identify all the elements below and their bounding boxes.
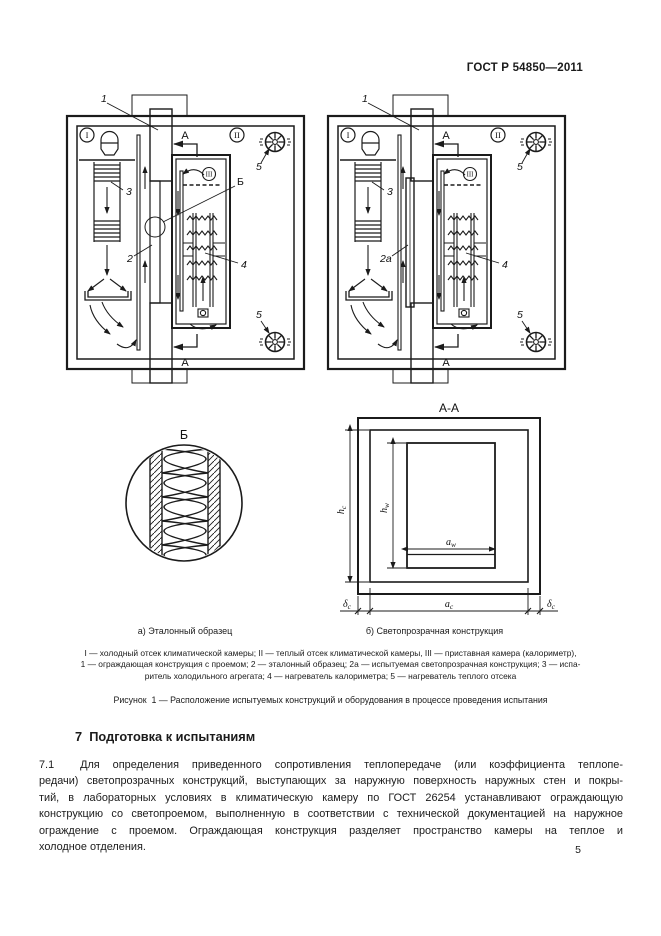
dim-ac: ac [445,599,454,611]
label-5-bottom: 5 [517,309,523,321]
fan-icon [520,133,552,152]
page-number: 5 [568,844,588,856]
calorimeter-box: III [433,155,491,329]
label-5-bottom: 5 [256,309,262,321]
paragraph-line: конструкцию со светопроемом, выполненную… [39,806,623,822]
paragraph-line: холодное отделения. [39,839,623,855]
translucent-construction [406,178,414,307]
document-page: ГОСТ Р 54850—2011 I [0,0,661,936]
partition-wall [150,109,172,383]
caption-translucent-construction: б) Светопрозрачная конструкция [322,626,547,636]
section-mark-top: А [181,130,189,142]
label-1: 1 [101,93,107,105]
paragraph-line: 7.1 Для определения приведенного сопроти… [39,757,623,773]
label-1: 1 [362,93,368,105]
legend-line: ритель холодильного агрегата; 4 — нагрев… [38,671,623,682]
drip-tray [85,291,131,300]
reference-specimen [145,181,165,303]
paragraph-line: редачи) светопрозрачных конструкций, выс… [39,773,623,789]
airflow-arrows [88,167,145,348]
roman-ii-label: II [495,130,501,140]
label-3: 3 [387,186,393,198]
section-mark-top: А [442,130,450,142]
drip-tray [346,291,392,300]
document-code: ГОСТ Р 54850—2011 [467,62,583,74]
inner-baffle [441,171,444,311]
paragraph-line: тий, в лабораторных условиях в климатиче… [39,790,623,806]
roman-ii-label: II [234,130,240,140]
cold-compartment: I [79,128,145,350]
roman-iii-label: III [206,172,214,179]
heater [444,213,486,307]
fan-icon [520,333,552,352]
dim-aw: aw [446,537,456,549]
fan-icon [259,133,291,152]
diagram-reference-specimen: I [57,85,315,385]
calorimeter-box: III [172,155,230,329]
airflow-arrows [349,167,403,348]
caption-reference-specimen: а) Эталонный образец [80,626,290,636]
calorimeter-fan [198,309,208,317]
cold-compartment: I [340,128,403,350]
legend-line: 1 — ограждающая конструкция с проемом; 2… [38,659,623,670]
section-mark-bottom: А [181,357,189,369]
baffle-plate [137,135,140,350]
roman-i-label: I [86,130,89,140]
baffle-plate [398,135,401,350]
section-aa-view: А-А hc hw aw δc ac δc [335,398,570,626]
label-2a: 2а [379,253,392,265]
section-paragraph: 7.1 Для определения приведенного сопроти… [39,757,623,855]
legend-line: I — холодный отсек климатической камеры;… [38,648,623,659]
inner-baffle [180,171,183,311]
detail-b-view: Б [100,425,280,585]
section-aa-title: А-А [439,401,459,415]
detail-b-title: Б [180,428,188,442]
label-4: 4 [241,259,247,271]
diagram-translucent-construction: I [318,85,576,385]
dim-dc-right: δc [547,599,556,611]
fan-icon [259,333,291,352]
label-4: 4 [502,259,508,271]
detail-callout-circle [145,217,165,237]
calorimeter-fan [459,309,469,317]
specimen-cross-section [150,443,220,569]
roman-iii-label: III [467,172,475,179]
heater [183,213,225,307]
roman-i-label: I [347,130,350,140]
label-b: Б [237,176,244,188]
label-3: 3 [126,186,132,198]
label-2: 2 [126,253,133,265]
detail-circle [126,445,242,561]
paragraph-line: ограждение с проемом. Ограждающая констр… [39,823,623,839]
dim-hc: hc [336,505,348,514]
figure-legend: I — холодный отсек климатической камеры;… [38,648,623,682]
figure-caption: Рисунок 1 — Расположение испытуемых конс… [38,695,623,705]
section-mark-bottom: А [442,357,450,369]
dim-dc-left: δc [343,599,352,611]
section-heading: 7 Подготовка к испытаниям [75,729,255,744]
dim-hw: hw [379,503,391,513]
